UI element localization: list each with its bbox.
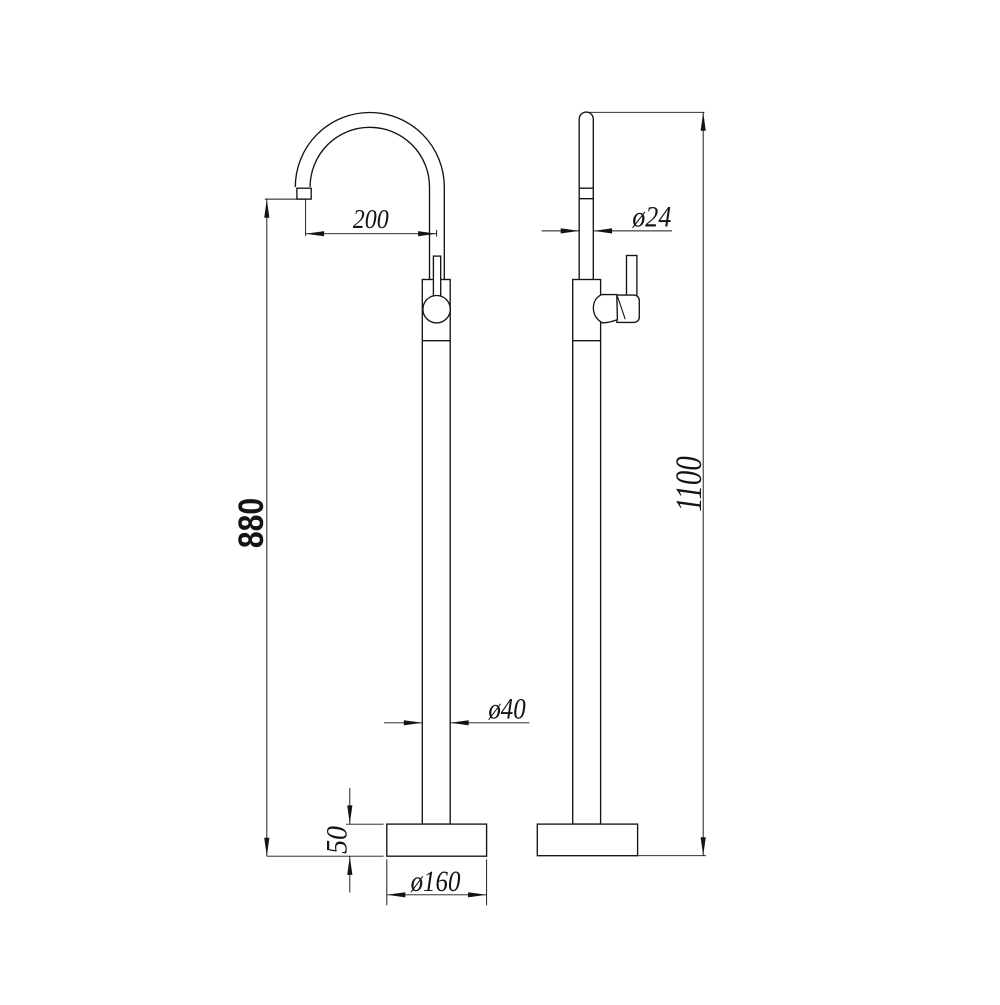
svg-text:ø24: ø24 (631, 201, 671, 234)
svg-text:50: 50 (321, 826, 354, 854)
svg-text:200: 200 (353, 204, 389, 235)
svg-text:ø160: ø160 (410, 864, 461, 898)
svg-text:ø40: ø40 (487, 691, 525, 725)
svg-text:880: 880 (231, 498, 271, 548)
svg-text:1100: 1100 (669, 456, 710, 512)
